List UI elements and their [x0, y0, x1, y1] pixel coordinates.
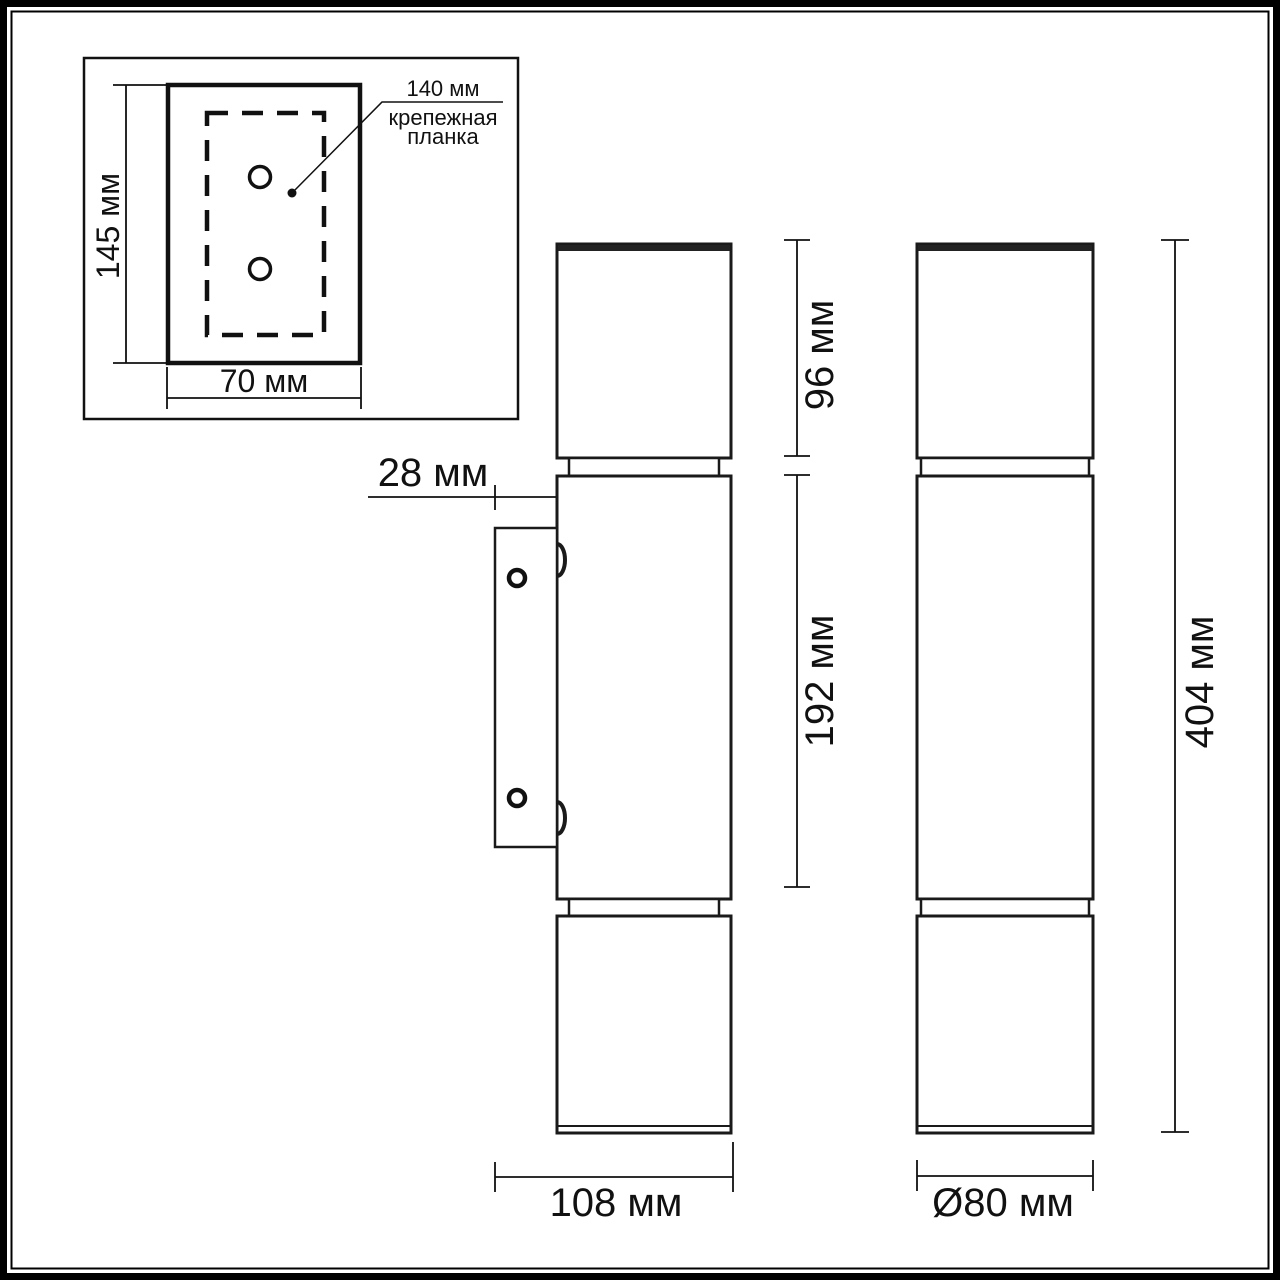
bracket-hole-top	[509, 570, 525, 586]
dimension-96: 96 мм	[784, 240, 842, 456]
dimension-28-label: 28 мм	[378, 451, 489, 495]
front-bottom-section	[917, 916, 1093, 1133]
side-top-cap-strip	[558, 245, 730, 251]
leader-caption-line2: планка	[407, 124, 479, 149]
dimension-108: 108 мм	[495, 1142, 733, 1225]
technical-drawing: 140 мм крепежная планка 145 мм 70 мм 2	[0, 0, 1280, 1280]
bracket-hole-bottom	[509, 790, 525, 806]
front-ring-upper	[921, 458, 1089, 476]
dimension-108-label: 108 мм	[550, 1181, 683, 1225]
front-view: 404 мм Ø80 мм	[917, 240, 1222, 1225]
mounting-plate-inset: 140 мм крепежная планка 145 мм 70 мм	[84, 58, 518, 419]
side-body-section	[557, 476, 731, 899]
front-top-cap-strip	[918, 245, 1092, 251]
dimension-96-label: 96 мм	[798, 300, 842, 411]
plate-hole-bottom	[250, 259, 271, 280]
dimension-192-label: 192 мм	[798, 615, 842, 748]
front-body-section	[917, 476, 1093, 899]
dimension-145-label: 145 мм	[90, 173, 126, 279]
side-top-section	[557, 244, 731, 458]
dimension-diameter-80: Ø80 мм	[917, 1160, 1093, 1225]
dimension-192: 192 мм	[784, 475, 842, 887]
dimension-404-label: 404 мм	[1178, 616, 1222, 749]
leader-dot	[288, 189, 297, 198]
side-bottom-section	[557, 916, 731, 1133]
dimension-28: 28 мм	[368, 451, 556, 510]
side-ring-upper	[569, 458, 719, 476]
dimension-404: 404 мм	[1161, 240, 1222, 1132]
side-ring-lower	[569, 899, 719, 916]
dimension-70-label: 70 мм	[220, 363, 308, 399]
leader-value-label: 140 мм	[406, 76, 479, 101]
mounting-plate	[168, 85, 360, 363]
plate-hole-top	[250, 167, 271, 188]
drawing-canvas: 140 мм крепежная планка 145 мм 70 мм 2	[0, 0, 1280, 1280]
front-ring-lower	[921, 899, 1089, 916]
dimension-diameter-80-label: Ø80 мм	[932, 1181, 1074, 1225]
front-top-section	[917, 244, 1093, 458]
